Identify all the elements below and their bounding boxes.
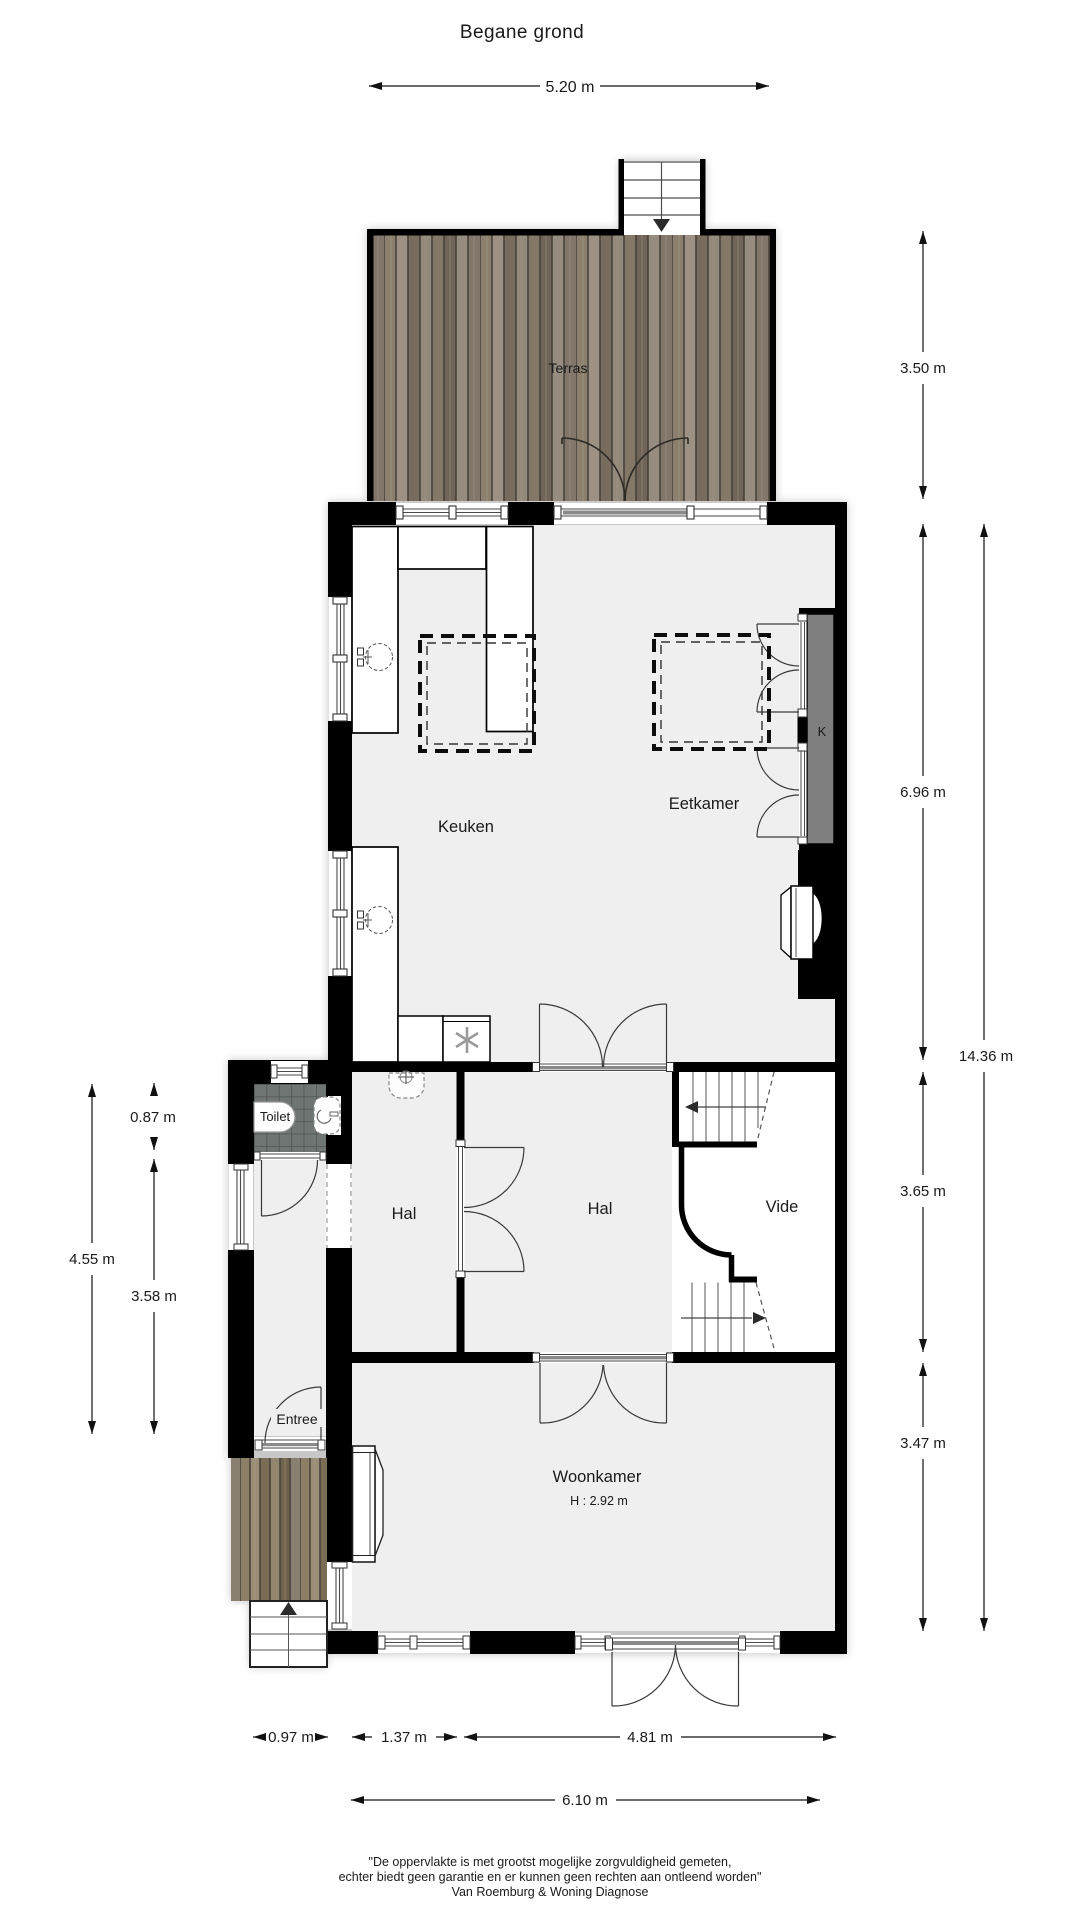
svg-text:3.50 m: 3.50 m [900, 360, 946, 377]
svg-text:Entree: Entree [276, 1411, 317, 1427]
svg-text:6.96 m: 6.96 m [900, 784, 946, 801]
svg-text:6.10 m: 6.10 m [562, 1792, 608, 1809]
svg-text:0.97 m: 0.97 m [268, 1729, 314, 1746]
svg-text:0.87 m: 0.87 m [130, 1109, 176, 1126]
svg-text:Hal: Hal [588, 1200, 613, 1218]
svg-text:4.81 m: 4.81 m [627, 1729, 673, 1746]
svg-text:4.55 m: 4.55 m [69, 1251, 115, 1268]
svg-text:3.65 m: 3.65 m [900, 1183, 946, 1200]
svg-text:1.37 m: 1.37 m [381, 1729, 427, 1746]
svg-text:K: K [818, 724, 827, 739]
svg-text:Woonkamer: Woonkamer [553, 1468, 642, 1486]
svg-text:Van Roemburg & Woning Diagnose: Van Roemburg & Woning Diagnose [452, 1885, 649, 1899]
svg-text:Begane grond: Begane grond [460, 22, 584, 43]
svg-text:Eetkamer: Eetkamer [669, 795, 740, 813]
svg-text:"De oppervlakte is met grootst: "De oppervlakte is met grootst mogelijke… [369, 1855, 732, 1869]
svg-text:14.36 m: 14.36 m [959, 1048, 1013, 1065]
svg-text:Toilet: Toilet [260, 1109, 291, 1124]
svg-text:echter biedt geen garantie en: echter biedt geen garantie en er kunnen … [339, 1870, 762, 1884]
svg-text:Terras: Terras [549, 360, 588, 376]
svg-text:Vide: Vide [766, 1198, 799, 1216]
svg-text:3.47 m: 3.47 m [900, 1435, 946, 1452]
svg-text:H : 2.92 m: H : 2.92 m [570, 1494, 628, 1508]
svg-text:Hal: Hal [392, 1205, 417, 1223]
svg-text:3.58 m: 3.58 m [131, 1288, 177, 1305]
svg-text:Keuken: Keuken [438, 818, 494, 836]
svg-text:5.20 m: 5.20 m [546, 79, 595, 96]
